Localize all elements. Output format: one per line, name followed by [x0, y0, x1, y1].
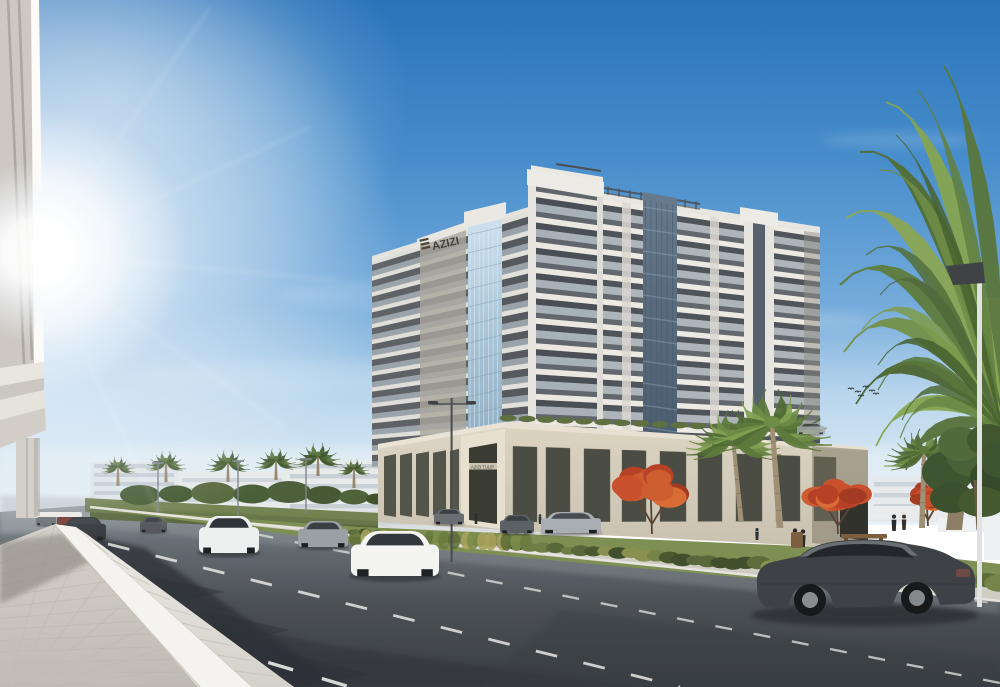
svg-text:AZIZI TULIP: AZIZI TULIP — [471, 465, 494, 470]
